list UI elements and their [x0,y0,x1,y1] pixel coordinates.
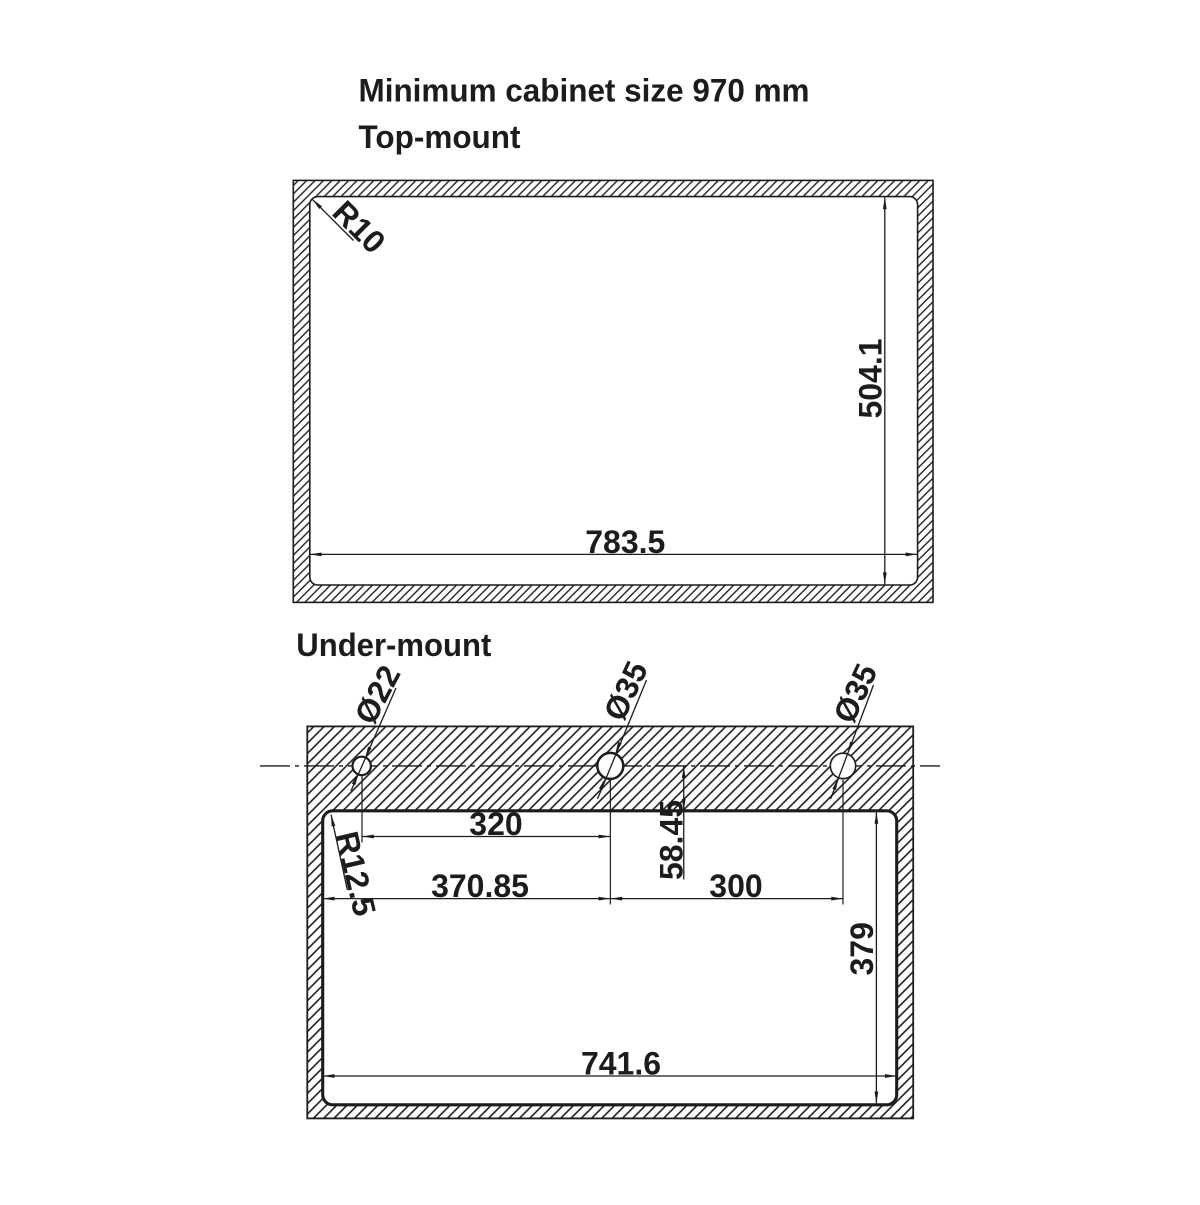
svg-text:Top-mount: Top-mount [359,119,521,155]
svg-text:379: 379 [844,922,880,975]
svg-text:Minimum cabinet size 970 mm: Minimum cabinet size 970 mm [359,72,810,108]
svg-text:370.85: 370.85 [431,868,529,904]
svg-text:504.1: 504.1 [853,338,889,418]
svg-text:783.5: 783.5 [585,524,665,560]
svg-text:Under-mount: Under-mount [296,627,491,663]
svg-text:300: 300 [709,868,762,904]
svg-text:741.6: 741.6 [581,1045,661,1081]
svg-text:320: 320 [469,806,522,842]
svg-text:58.45: 58.45 [654,800,690,880]
